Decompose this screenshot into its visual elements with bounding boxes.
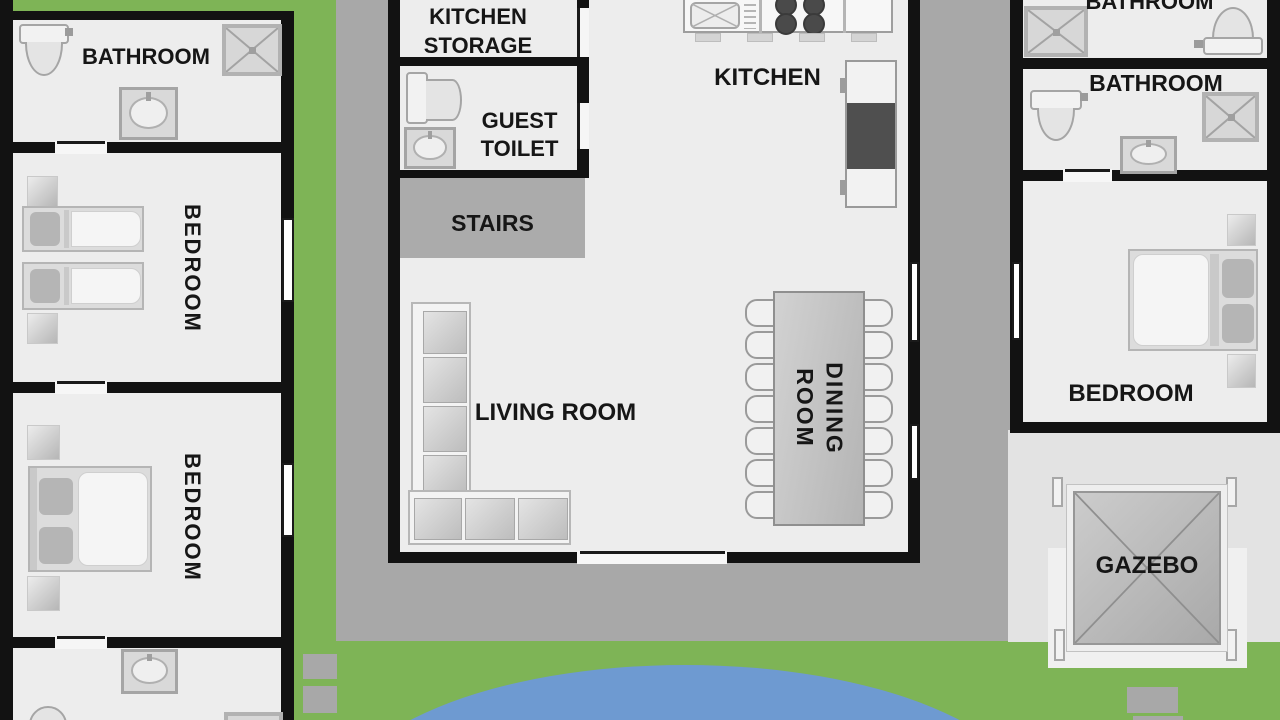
bathroom-left-label: BATHROOM <box>76 43 216 71</box>
sink-faucet <box>147 654 152 662</box>
kitchen-storage-label: KITCHEN STORAGE <box>398 2 558 60</box>
fridge-icon <box>845 60 897 208</box>
toilet-tank <box>1030 90 1082 110</box>
sofa-cushion <box>518 498 568 540</box>
kitchen-label: KITCHEN <box>700 63 835 94</box>
pillow <box>39 527 73 564</box>
nightstand <box>27 576 60 611</box>
chair-icon <box>861 331 893 359</box>
shower-icon <box>1202 92 1259 142</box>
shower-drain <box>249 47 256 54</box>
bathroom-right-top-label: BATHROOM <box>1082 0 1217 16</box>
sink-icon <box>404 127 456 169</box>
chair-icon <box>861 363 893 391</box>
dining-table: DINING ROOM <box>773 291 865 526</box>
sofa-cushion <box>423 311 467 354</box>
toilet-flush-knob <box>1194 40 1203 48</box>
sink-icon <box>121 649 178 694</box>
nightstand <box>27 176 58 207</box>
stove-burner-icon <box>775 13 797 35</box>
walkway-right-strip <box>920 0 1010 565</box>
bedroom-right-label: BEDROOM <box>1062 379 1200 410</box>
mattress <box>1133 254 1209 346</box>
sink-faucet <box>146 92 151 101</box>
floor-plan: DINING ROOM <box>0 0 1280 720</box>
nightstand <box>27 425 60 460</box>
counter-foot <box>851 33 877 42</box>
nightstand <box>1227 214 1256 246</box>
window <box>1012 262 1021 340</box>
window <box>282 218 294 302</box>
pillow <box>1222 259 1254 298</box>
sink-icon <box>119 87 178 140</box>
sink-faucet <box>1146 140 1151 146</box>
sofa-cushion <box>423 455 467 495</box>
chair-icon <box>861 299 893 327</box>
bedroom-left-bottom-label: BEDROOM <box>176 452 208 582</box>
mattress <box>78 472 148 566</box>
wall <box>1267 0 1280 433</box>
swimming-pool <box>335 665 1035 720</box>
pillow <box>1222 304 1254 343</box>
sofa-cushion <box>423 357 467 403</box>
wall <box>388 0 400 563</box>
window <box>910 424 919 480</box>
chair-icon <box>861 459 893 487</box>
nightstand <box>1227 354 1256 388</box>
counter-divider <box>843 0 846 33</box>
pillow <box>39 478 73 515</box>
shower-drain <box>1053 29 1060 36</box>
stepping-stone <box>303 686 337 713</box>
window <box>282 463 294 537</box>
bed-icon <box>28 466 152 572</box>
fridge-handle <box>840 78 847 93</box>
wall <box>281 11 294 720</box>
wall <box>13 382 281 393</box>
shower-drain <box>1228 114 1235 121</box>
door-leaf <box>577 8 580 57</box>
mattress <box>71 211 141 247</box>
toilet-tank <box>406 72 428 124</box>
wall <box>1010 0 1023 433</box>
door-leaf <box>580 551 725 554</box>
toilet-flush-knob <box>65 28 73 36</box>
sofa-cushion <box>414 498 462 540</box>
guest-toilet-label: GUEST TOILET <box>452 107 587 163</box>
chair-icon <box>861 491 893 519</box>
kitchen-sink-icon <box>690 2 740 29</box>
headboard <box>30 468 37 570</box>
sofa-icon <box>411 302 471 497</box>
wall <box>0 0 13 720</box>
bed-icon <box>22 262 144 310</box>
door-leaf <box>57 141 105 144</box>
door-leaf <box>57 636 105 639</box>
nightstand <box>27 313 58 344</box>
gazebo-post <box>1054 629 1065 661</box>
headboard <box>1210 254 1219 346</box>
door-leaf <box>1065 169 1110 172</box>
shower-icon <box>1024 6 1088 57</box>
wall <box>388 170 589 178</box>
sink-faucet <box>428 131 432 138</box>
stepping-stone <box>1127 687 1178 713</box>
fridge-handle <box>840 180 847 195</box>
counter-foot <box>695 33 721 42</box>
mattress <box>71 268 141 304</box>
sink-basin <box>129 97 167 129</box>
bedroom-left-top-label: BEDROOM <box>176 203 208 333</box>
wall <box>13 142 281 153</box>
wall <box>0 11 294 20</box>
wall <box>1023 58 1267 69</box>
gazebo-post <box>1052 477 1063 507</box>
counter-divider <box>759 0 762 33</box>
stove-burner-icon <box>803 13 825 35</box>
toilet-tank <box>19 24 69 44</box>
wall <box>13 637 281 648</box>
bed-icon <box>1128 249 1258 351</box>
sink-icon <box>1120 136 1177 174</box>
patio-band <box>336 563 1010 641</box>
bed-divider <box>64 267 69 305</box>
bed-divider <box>64 210 69 248</box>
bed-icon <box>22 206 144 252</box>
bathroom-right-mid-label: BATHROOM <box>1086 69 1226 98</box>
stepping-stone <box>1133 716 1183 720</box>
stepping-stone <box>303 654 337 679</box>
fridge-door-panel <box>847 103 895 169</box>
counter-foot <box>799 33 825 42</box>
chair-icon <box>861 395 893 423</box>
counter-foot <box>747 33 773 42</box>
drainboard-icon <box>744 4 756 29</box>
living-room-label: LIVING ROOM <box>468 398 643 429</box>
chair-icon <box>861 427 893 455</box>
pillow <box>30 269 60 303</box>
window <box>910 262 919 342</box>
door-leaf <box>57 381 105 384</box>
dining-room-label: DINING ROOM <box>790 351 849 467</box>
sofa-cushion <box>423 406 467 452</box>
wall <box>1010 422 1280 433</box>
gazebo-label: GAZEBO <box>1087 551 1207 582</box>
sink-basin <box>1130 143 1167 165</box>
shower-icon <box>222 24 282 76</box>
shower-icon <box>224 712 283 720</box>
toilet-tank <box>1203 37 1263 55</box>
pillow <box>30 212 60 246</box>
sofa-cushion <box>465 498 515 540</box>
walkway-left-strip <box>336 0 390 565</box>
sink-basin <box>413 135 446 159</box>
stairs-label: STAIRS <box>400 209 585 238</box>
sofa-icon <box>408 490 571 545</box>
sink-basin <box>131 657 168 684</box>
